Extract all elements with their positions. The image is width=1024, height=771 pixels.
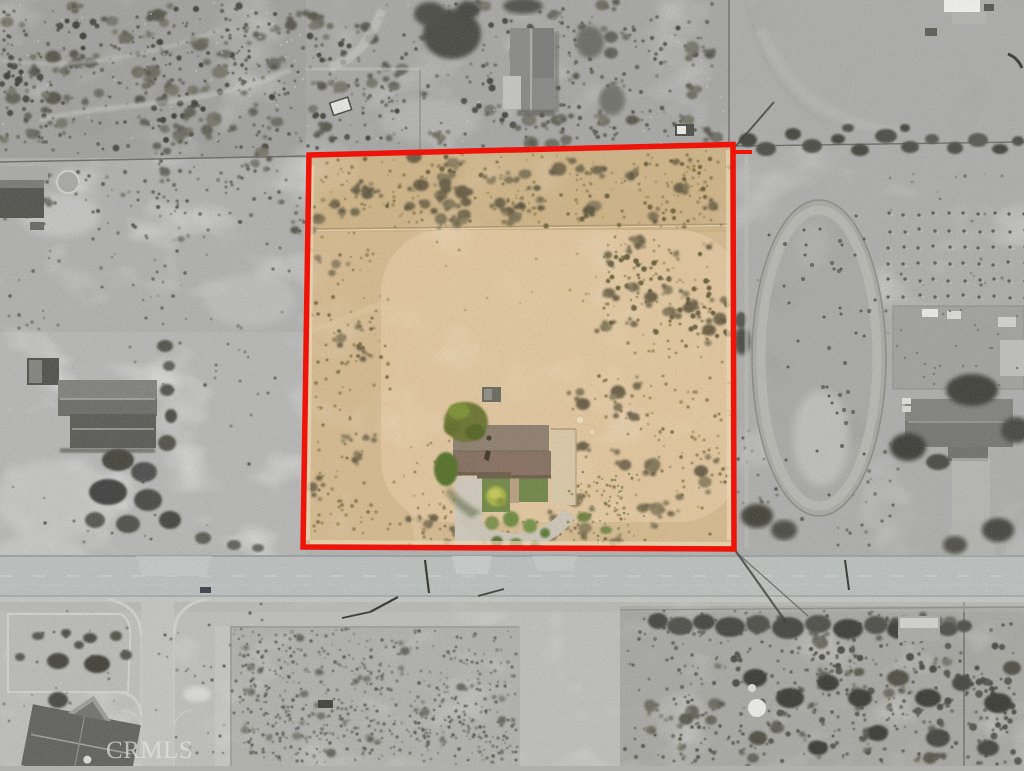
svg-text:CRMLS: CRMLS [106,737,193,764]
